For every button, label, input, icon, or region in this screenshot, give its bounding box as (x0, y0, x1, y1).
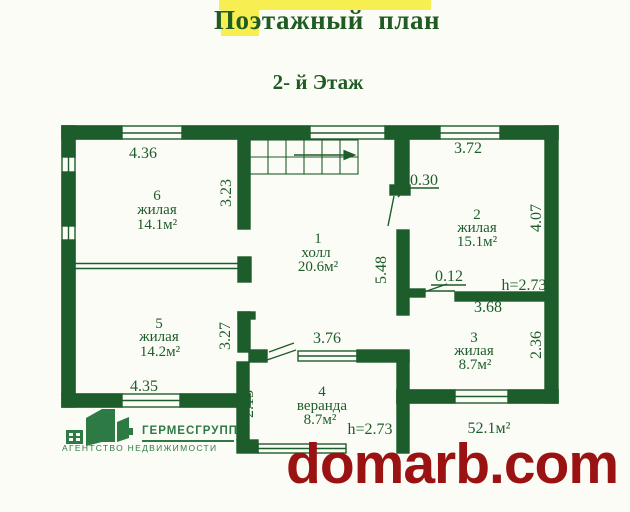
dim-room6-height: 3.23 (218, 179, 235, 207)
room-1-area: 20.6м² (298, 259, 339, 275)
logo-name: ГЕРМЕСГРУПП (142, 425, 238, 437)
staircase (250, 140, 358, 174)
dim-room2-width: 3.72 (454, 140, 482, 157)
page: Поэтажный план 2- й Этаж (0, 0, 630, 512)
room-5-area: 14.2м² (140, 344, 181, 360)
dim-room5-width: 4.35 (130, 378, 158, 395)
dim-room3-width: 3.68 (474, 299, 502, 316)
logo-tagline: АГЕНТСТВО НЕДВИЖИМОСТИ (62, 443, 217, 453)
logo-divider (142, 440, 234, 442)
dim-room2-height: 4.07 (528, 204, 545, 232)
room-4-area: 8.7м² (304, 412, 337, 428)
room-5-name: жилая (138, 329, 179, 345)
dim-hall-height: 5.48 (373, 256, 390, 284)
dimension-labels: 4.36 3.23 3.72 0.30 4.07 5.48 0.12 h=2.7… (129, 140, 547, 438)
watermark-text: domarb.com (286, 436, 618, 493)
dim-hall-width: 3.76 (313, 330, 341, 347)
dim-room6-width: 4.36 (129, 145, 157, 162)
room-2-area: 15.1м² (457, 234, 498, 250)
dim-door-offset: 0.30 (410, 172, 438, 189)
dim-room5-wall: 3.27 (217, 322, 234, 350)
dim-veranda-height: 2.13 (240, 390, 257, 418)
dim-wall-stub: 0.12 (435, 268, 463, 285)
room-3-area: 8.7м² (459, 357, 492, 373)
dim-ceiling-height: h=2.73 (501, 277, 546, 294)
room-6-name: жилая (136, 202, 177, 218)
agency-logo: ГЕРМЕСГРУПП АГЕНТСТВО НЕДВИЖИМОСТИ (54, 404, 239, 459)
room-6-area: 14.1м² (137, 217, 178, 233)
dim-room3-height: 2.36 (528, 331, 545, 359)
